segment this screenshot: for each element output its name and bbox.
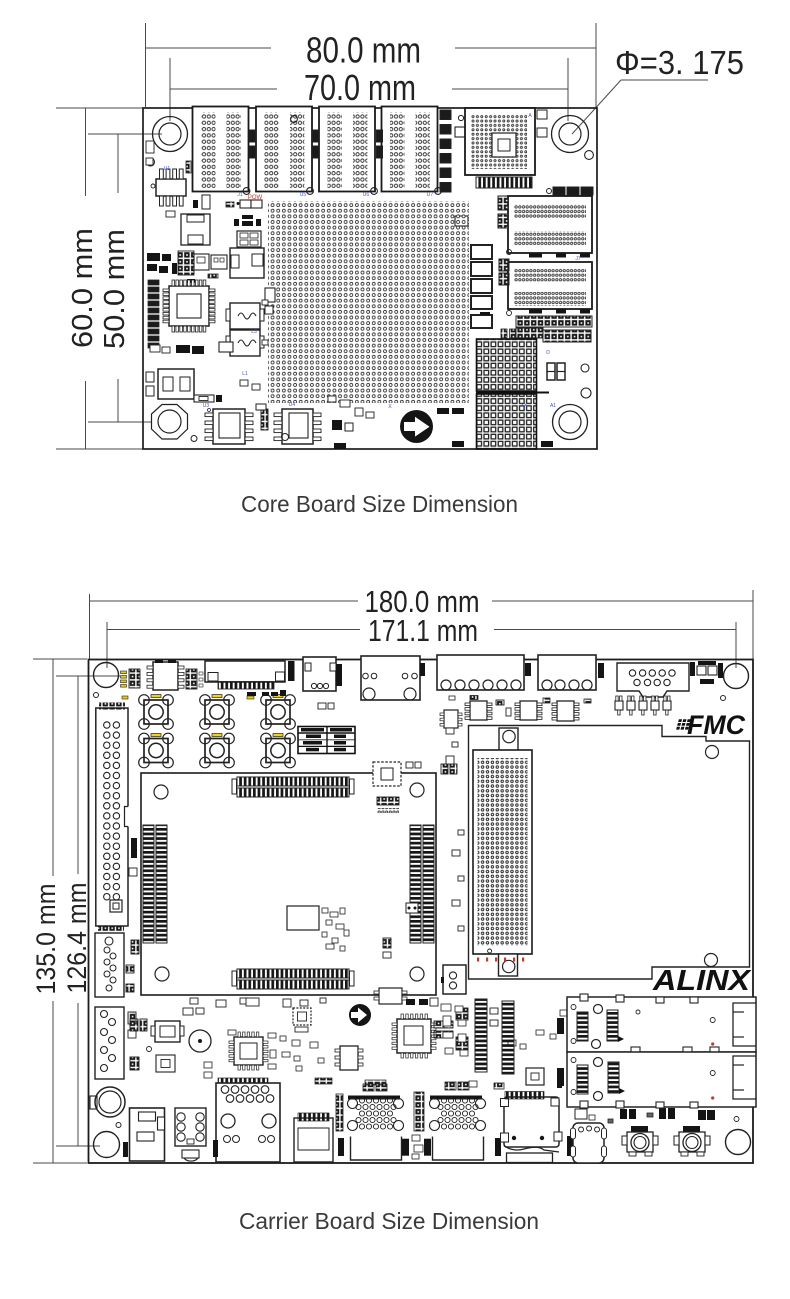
svg-text:U7: U7 [427, 192, 434, 198]
svg-text:U6: U6 [363, 192, 370, 198]
svg-text:U4: U4 [289, 402, 296, 408]
svg-text:L3: L3 [251, 329, 257, 335]
svg-text:J7: J7 [575, 256, 581, 262]
svg-text:J1: J1 [237, 192, 243, 198]
svg-text:L1: L1 [242, 371, 248, 377]
svg-text:126.4 mm: 126.4 mm [62, 883, 92, 994]
svg-text:POW: POW [248, 195, 263, 201]
svg-text:D: D [546, 350, 550, 356]
svg-text:135.0 mm: 135.0 mm [31, 884, 61, 995]
svg-text:X: X [388, 404, 392, 410]
svg-text:U3: U3 [203, 403, 210, 409]
svg-text:ALINX: ALINX [652, 965, 752, 997]
svg-text:Carrier Board Size Dimension: Carrier Board Size Dimension [239, 1208, 539, 1234]
svg-text:U5: U5 [300, 192, 307, 198]
svg-text:80.0 mm: 80.0 mm [306, 30, 421, 71]
svg-text:171.1 mm: 171.1 mm [368, 613, 478, 648]
svg-text:50.0 mm: 50.0 mm [99, 229, 131, 349]
svg-text:A1: A1 [550, 403, 556, 409]
svg-text:U1: U1 [164, 166, 171, 172]
svg-text:Core Board Size Dimension: Core Board Size Dimension [241, 491, 518, 517]
svg-text:Φ=3. 175: Φ=3. 175 [615, 44, 744, 81]
svg-text:FMC: FMC [687, 710, 745, 740]
svg-text:70.0 mm: 70.0 mm [304, 67, 416, 108]
svg-text:60.0 mm: 60.0 mm [67, 228, 99, 348]
svg-text:XX: XX [521, 403, 528, 409]
